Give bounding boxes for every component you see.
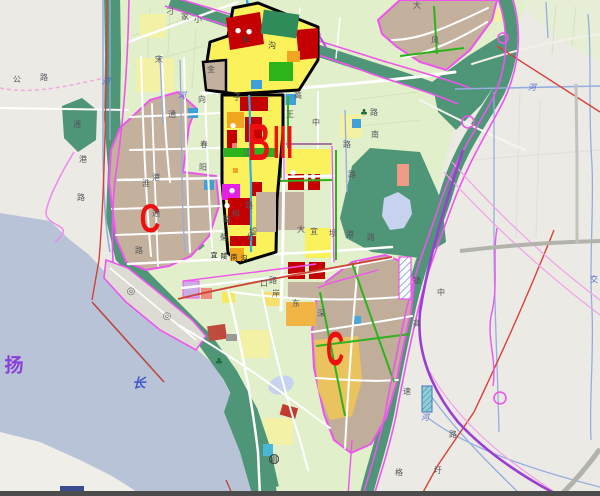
special-zone-central — [222, 95, 283, 263]
planning-map-canvas — [0, 0, 600, 496]
planning-map-viewport[interactable]: CBIIIC扬长公路河宋河向通港路淮通港通春阳子高王江金海沟刁家小路南路路中路梅… — [0, 0, 600, 496]
bottom-edge-strip — [0, 491, 600, 496]
